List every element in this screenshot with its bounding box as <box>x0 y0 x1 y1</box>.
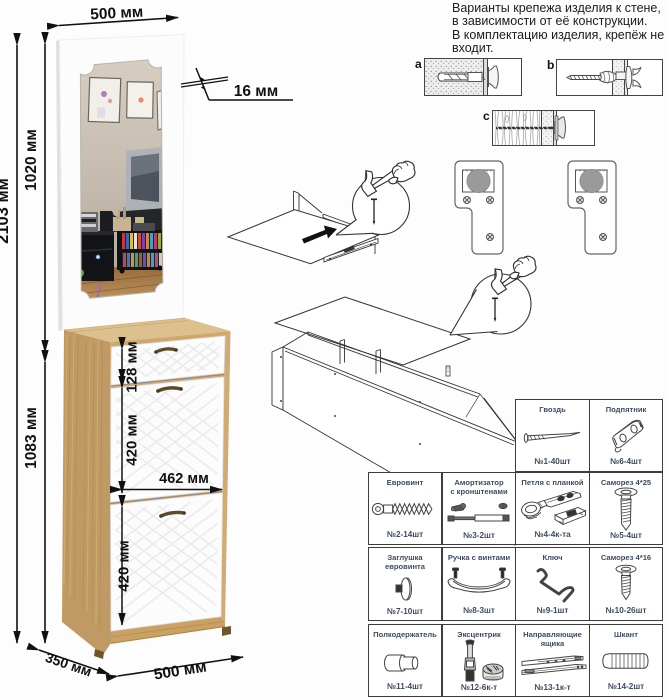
svg-text:128 мм: 128 мм <box>124 341 141 392</box>
svg-text:350 мм: 350 мм <box>43 649 94 680</box>
svg-text:420 мм: 420 мм <box>116 540 133 591</box>
svg-text:1083 мм: 1083 мм <box>23 407 40 469</box>
svg-text:462 мм: 462 мм <box>159 471 209 487</box>
svg-text:16 мм: 16 мм <box>234 83 278 100</box>
svg-text:420 мм: 420 мм <box>124 414 141 465</box>
svg-text:a: a <box>415 57 422 71</box>
svg-text:c: c <box>483 109 490 123</box>
svg-text:500 мм: 500 мм <box>153 659 208 684</box>
svg-text:b: b <box>547 58 554 72</box>
svg-text:2103 мм: 2103 мм <box>0 178 12 244</box>
svg-text:1020 мм: 1020 мм <box>23 129 40 191</box>
